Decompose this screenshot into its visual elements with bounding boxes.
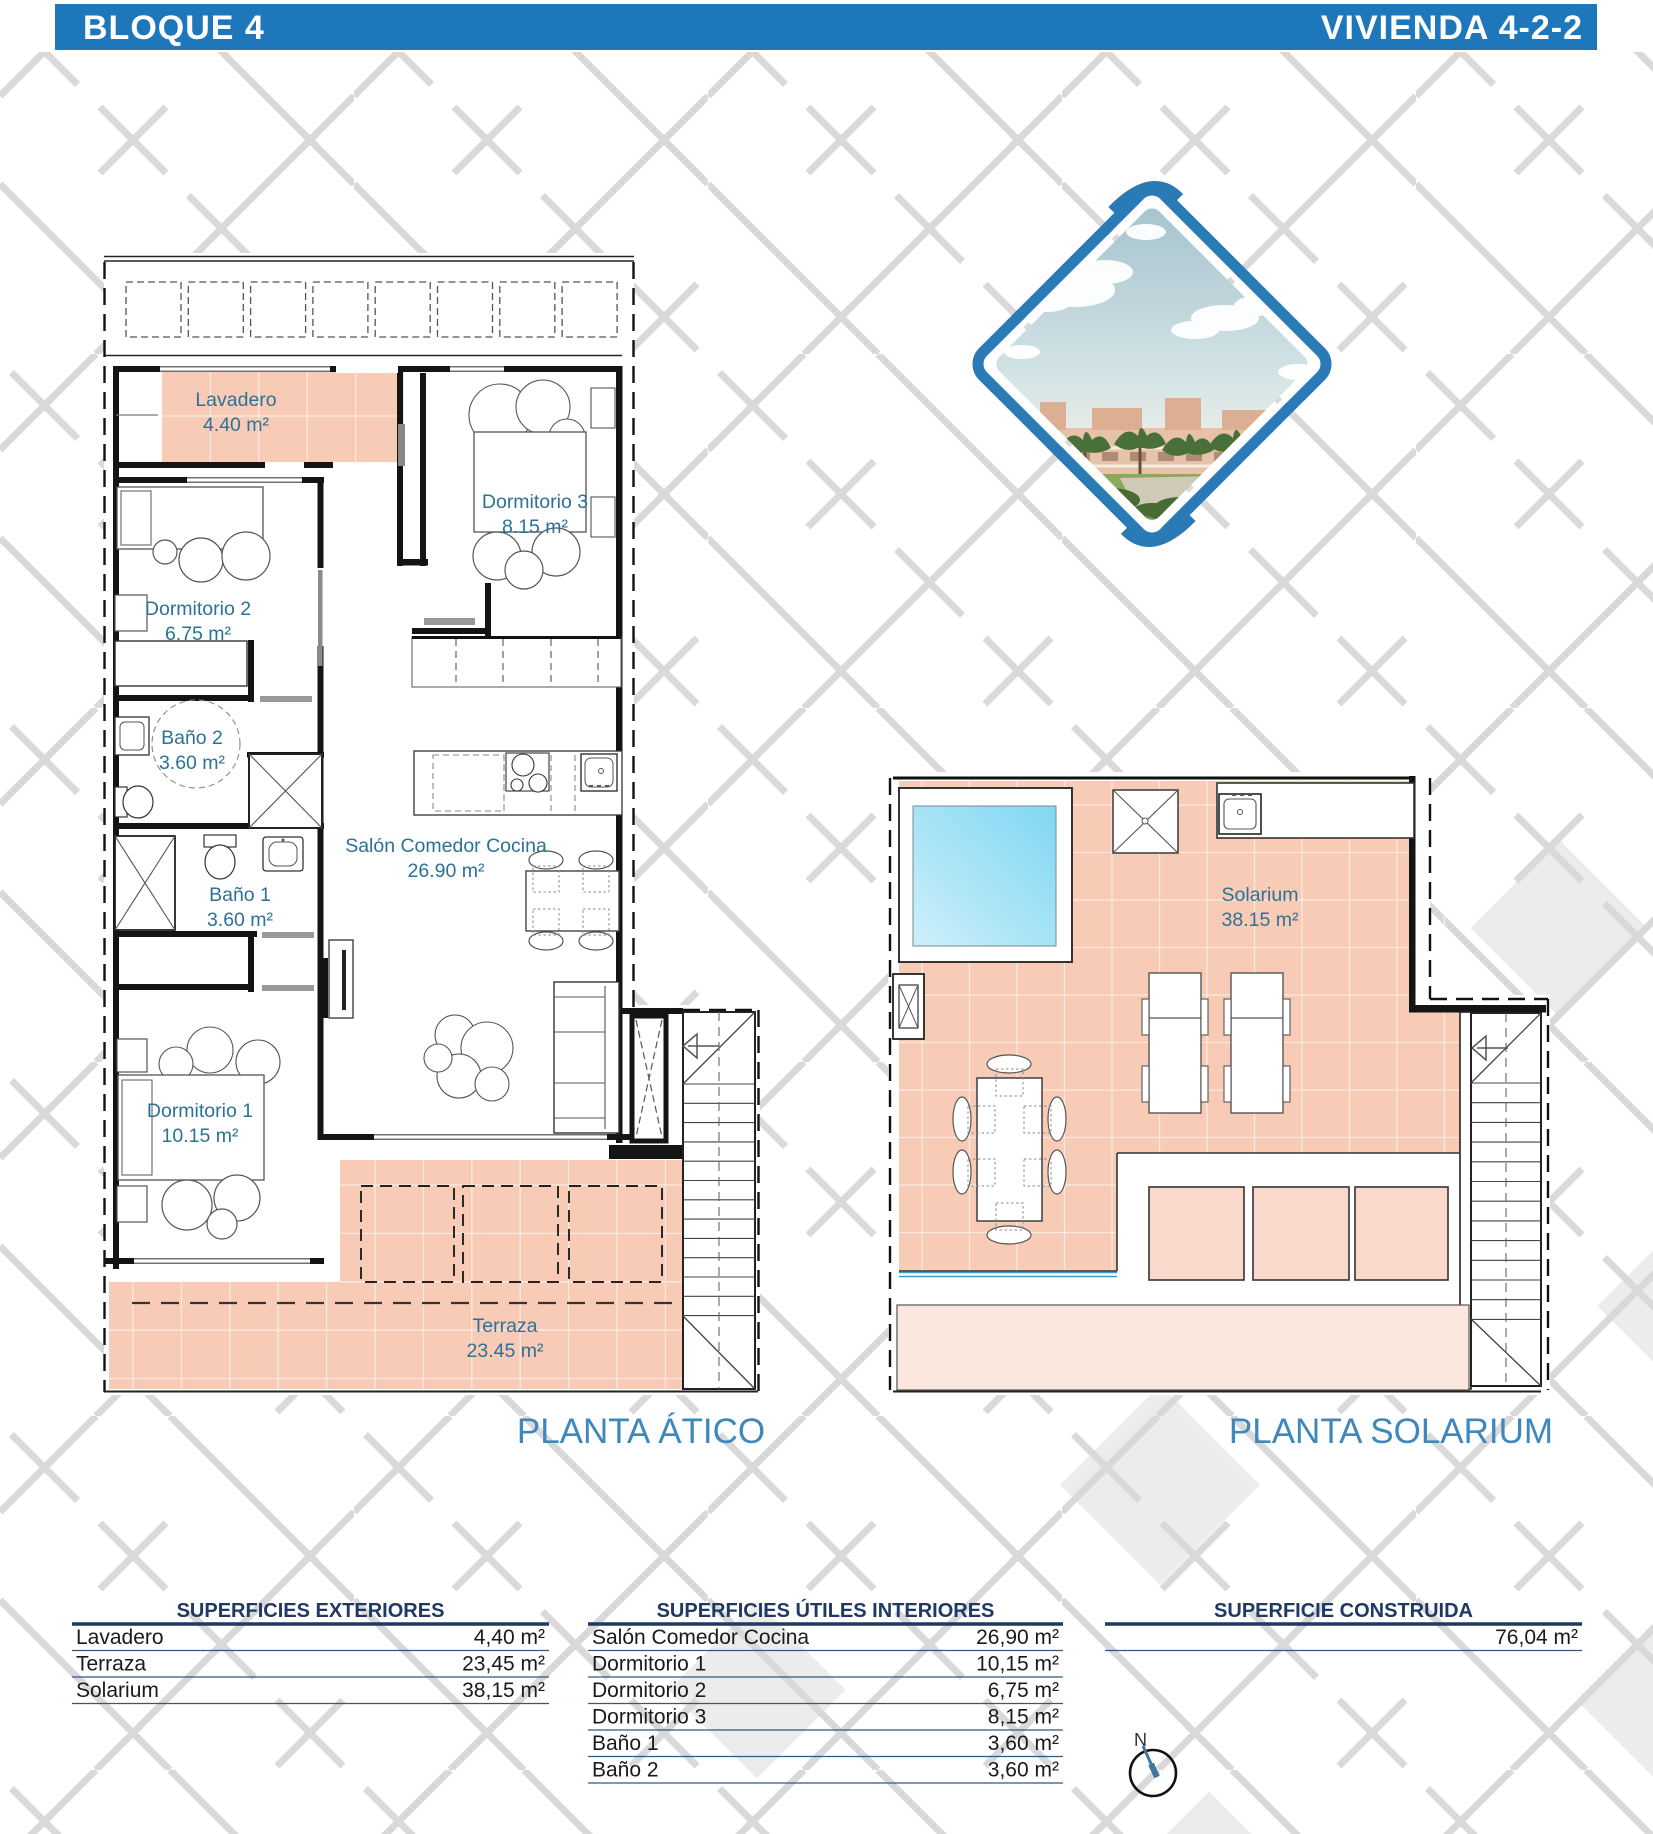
svg-text:VIVIENDA 4-2-2: VIVIENDA 4-2-2 bbox=[1321, 9, 1583, 47]
svg-text:SUPERFICIE CONSTRUIDA: SUPERFICIE CONSTRUIDA bbox=[1214, 1600, 1473, 1622]
svg-text:Solarium: Solarium bbox=[1222, 884, 1299, 906]
svg-text:SUPERFICIES ÚTILES INTERIORES: SUPERFICIES ÚTILES INTERIORES bbox=[657, 1598, 995, 1622]
svg-text:Lavadero: Lavadero bbox=[76, 1626, 164, 1649]
svg-text:38.15 m²: 38.15 m² bbox=[1222, 909, 1299, 931]
svg-text:3.60 m²: 3.60 m² bbox=[207, 909, 274, 931]
svg-text:Salón Comedor Cocina: Salón Comedor Cocina bbox=[592, 1626, 809, 1649]
svg-text:Lavadero: Lavadero bbox=[195, 389, 276, 411]
svg-text:Dormitorio 2: Dormitorio 2 bbox=[592, 1679, 706, 1702]
svg-text:Terraza: Terraza bbox=[76, 1653, 146, 1676]
svg-text:23,45 m²: 23,45 m² bbox=[462, 1653, 545, 1676]
svg-text:SUPERFICIES EXTERIORES: SUPERFICIES EXTERIORES bbox=[177, 1600, 445, 1622]
svg-text:PLANTA SOLARIUM: PLANTA SOLARIUM bbox=[1229, 1412, 1553, 1451]
svg-text:Salón Comedor Cocina: Salón Comedor Cocina bbox=[345, 835, 547, 857]
svg-text:23.45 m²: 23.45 m² bbox=[467, 1340, 544, 1362]
svg-text:10.15 m²: 10.15 m² bbox=[162, 1125, 239, 1147]
svg-text:3,60 m²: 3,60 m² bbox=[988, 1759, 1059, 1782]
svg-text:6.75 m²: 6.75 m² bbox=[165, 623, 232, 645]
svg-text:Baño 1: Baño 1 bbox=[209, 884, 271, 906]
svg-text:Baño 2: Baño 2 bbox=[592, 1759, 659, 1782]
svg-text:4,40 m²: 4,40 m² bbox=[474, 1626, 545, 1649]
svg-text:4.40 m²: 4.40 m² bbox=[203, 414, 270, 436]
svg-text:PLANTA ÁTICO: PLANTA ÁTICO bbox=[517, 1412, 765, 1451]
svg-text:3,60 m²: 3,60 m² bbox=[988, 1732, 1059, 1755]
svg-text:Dormitorio 1: Dormitorio 1 bbox=[592, 1653, 706, 1676]
svg-text:38,15 m²: 38,15 m² bbox=[462, 1679, 545, 1702]
svg-text:10,15 m²: 10,15 m² bbox=[976, 1653, 1059, 1676]
svg-text:Dormitorio 3: Dormitorio 3 bbox=[482, 491, 588, 513]
svg-text:26,90 m²: 26,90 m² bbox=[976, 1626, 1059, 1649]
svg-text:8.15 m²: 8.15 m² bbox=[502, 516, 569, 538]
svg-text:Baño 1: Baño 1 bbox=[592, 1732, 659, 1755]
svg-text:Dormitorio 1: Dormitorio 1 bbox=[147, 1100, 253, 1122]
svg-text:76,04 m²: 76,04 m² bbox=[1495, 1626, 1578, 1649]
svg-text:26.90 m²: 26.90 m² bbox=[408, 860, 485, 882]
svg-text:BLOQUE 4: BLOQUE 4 bbox=[83, 9, 265, 47]
svg-text:8,15 m²: 8,15 m² bbox=[988, 1706, 1059, 1729]
svg-text:Baño 2: Baño 2 bbox=[161, 727, 223, 749]
svg-text:Terraza: Terraza bbox=[472, 1315, 537, 1337]
svg-text:Dormitorio 3: Dormitorio 3 bbox=[592, 1706, 706, 1729]
svg-text:3.60 m²: 3.60 m² bbox=[159, 752, 226, 774]
svg-text:Solarium: Solarium bbox=[76, 1679, 159, 1702]
svg-text:6,75 m²: 6,75 m² bbox=[988, 1679, 1059, 1702]
svg-text:Dormitorio 2: Dormitorio 2 bbox=[145, 598, 251, 620]
